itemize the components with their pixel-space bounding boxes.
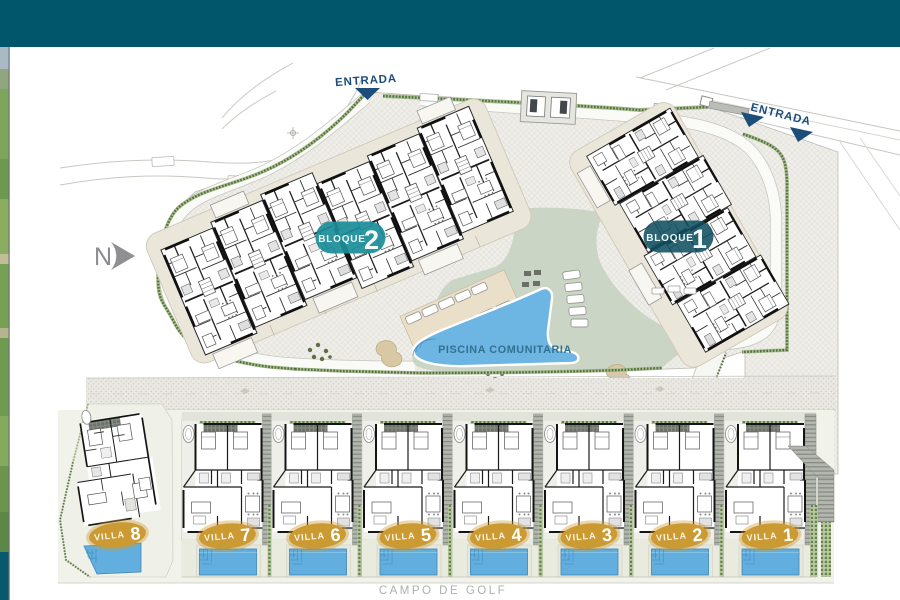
svg-text:N: N bbox=[94, 243, 112, 271]
svg-text:4: 4 bbox=[511, 525, 523, 546]
svg-text:8: 8 bbox=[129, 523, 141, 544]
svg-text:3: 3 bbox=[601, 525, 613, 546]
svg-text:BLOQUE: BLOQUE bbox=[318, 234, 366, 245]
svg-text:BLOQUE: BLOQUE bbox=[646, 233, 694, 244]
svg-text:PISCINA COMUNITARIA: PISCINA COMUNITARIA bbox=[438, 344, 572, 356]
svg-text:2: 2 bbox=[692, 525, 704, 546]
svg-text:1: 1 bbox=[782, 525, 794, 546]
svg-text:CAMPO DE GOLF: CAMPO DE GOLF bbox=[379, 585, 507, 597]
svg-text:7: 7 bbox=[240, 525, 252, 546]
svg-text:1: 1 bbox=[692, 224, 707, 254]
svg-text:5: 5 bbox=[420, 525, 432, 546]
svg-text:6: 6 bbox=[330, 525, 342, 546]
svg-text:2: 2 bbox=[364, 225, 379, 255]
